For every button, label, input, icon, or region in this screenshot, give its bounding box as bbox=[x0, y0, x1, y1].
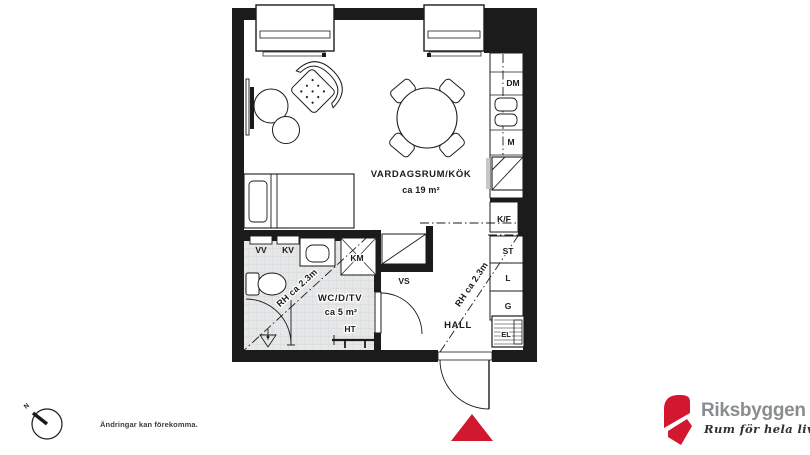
dining-table bbox=[397, 88, 457, 148]
linen-closet-label: L bbox=[505, 273, 510, 283]
washbasin bbox=[300, 238, 335, 266]
window-right bbox=[424, 5, 484, 57]
radiator bbox=[263, 52, 325, 56]
entrance-marker-triangle bbox=[451, 414, 493, 441]
dining-group bbox=[388, 78, 466, 159]
hot-water-label: VV bbox=[255, 245, 267, 255]
pillow bbox=[249, 181, 267, 222]
wall-top-mid bbox=[332, 8, 424, 20]
window-glazing bbox=[260, 31, 330, 38]
rh-note-hall: RH ca 2.3m bbox=[453, 260, 490, 308]
wall-right bbox=[523, 8, 537, 362]
compass: N bbox=[23, 402, 62, 439]
sink-basin bbox=[495, 98, 517, 111]
bed bbox=[244, 174, 354, 231]
washing-machine-label: KM bbox=[350, 253, 363, 263]
brand-name: Riksbyggen bbox=[701, 400, 806, 421]
entrance-door bbox=[438, 352, 492, 409]
electrical-cabinet-label: EL bbox=[501, 330, 511, 339]
compass-north-label: N bbox=[23, 402, 31, 411]
radiator bbox=[429, 52, 481, 56]
window-left bbox=[256, 5, 334, 57]
disclaimer-text: Ändringar kan förekomma. bbox=[100, 420, 198, 429]
bathroom-door bbox=[375, 292, 422, 334]
wall-vs-niche-bottom bbox=[374, 264, 433, 272]
hot-water-valve-box bbox=[250, 236, 272, 244]
fridge-freezer-label: K/F bbox=[497, 214, 511, 224]
toilet bbox=[246, 273, 286, 295]
hall-label: HALL bbox=[444, 320, 472, 331]
wall-left bbox=[232, 8, 244, 362]
dishwasher-label: DM bbox=[506, 78, 519, 88]
side-table bbox=[273, 117, 300, 144]
living-room-area: ca 19 m² bbox=[402, 185, 440, 195]
towel-dryer-label: HT bbox=[344, 324, 356, 334]
brand-logo: Riksbyggen Rum för hela livet bbox=[664, 395, 810, 445]
vs-cabinet bbox=[382, 234, 426, 264]
wall-tv bbox=[246, 79, 254, 135]
armchair bbox=[284, 53, 352, 121]
bathroom-label: WC/D/TV bbox=[318, 293, 362, 304]
microwave-label: M bbox=[507, 137, 514, 147]
wardrobe-label: G bbox=[505, 301, 512, 311]
cold-water-valve-box bbox=[277, 236, 299, 244]
brand-tagline: Rum för hela livet bbox=[703, 422, 810, 436]
bathroom-area: ca 5 m² bbox=[325, 307, 357, 317]
sink-basin bbox=[495, 114, 517, 126]
living-room-label: VARDAGSRUM/KÖK bbox=[371, 169, 472, 180]
stove bbox=[492, 157, 523, 190]
riksbyggen-logo-mark bbox=[664, 395, 692, 445]
cleaning-closet-label: ST bbox=[503, 246, 515, 256]
floorplan-page: VARDAGSRUM/KÖK ca 19 m² WC/D/TV ca 5 m² … bbox=[0, 0, 810, 455]
wall-bottom-left bbox=[232, 350, 438, 362]
window-glazing bbox=[428, 31, 480, 38]
floorplan-drawing: VARDAGSRUM/KÖK ca 19 m² WC/D/TV ca 5 m² … bbox=[0, 0, 810, 455]
wall-bottom-right bbox=[492, 350, 537, 362]
cold-water-label: KV bbox=[282, 245, 294, 255]
vs-label: VS bbox=[398, 276, 410, 286]
